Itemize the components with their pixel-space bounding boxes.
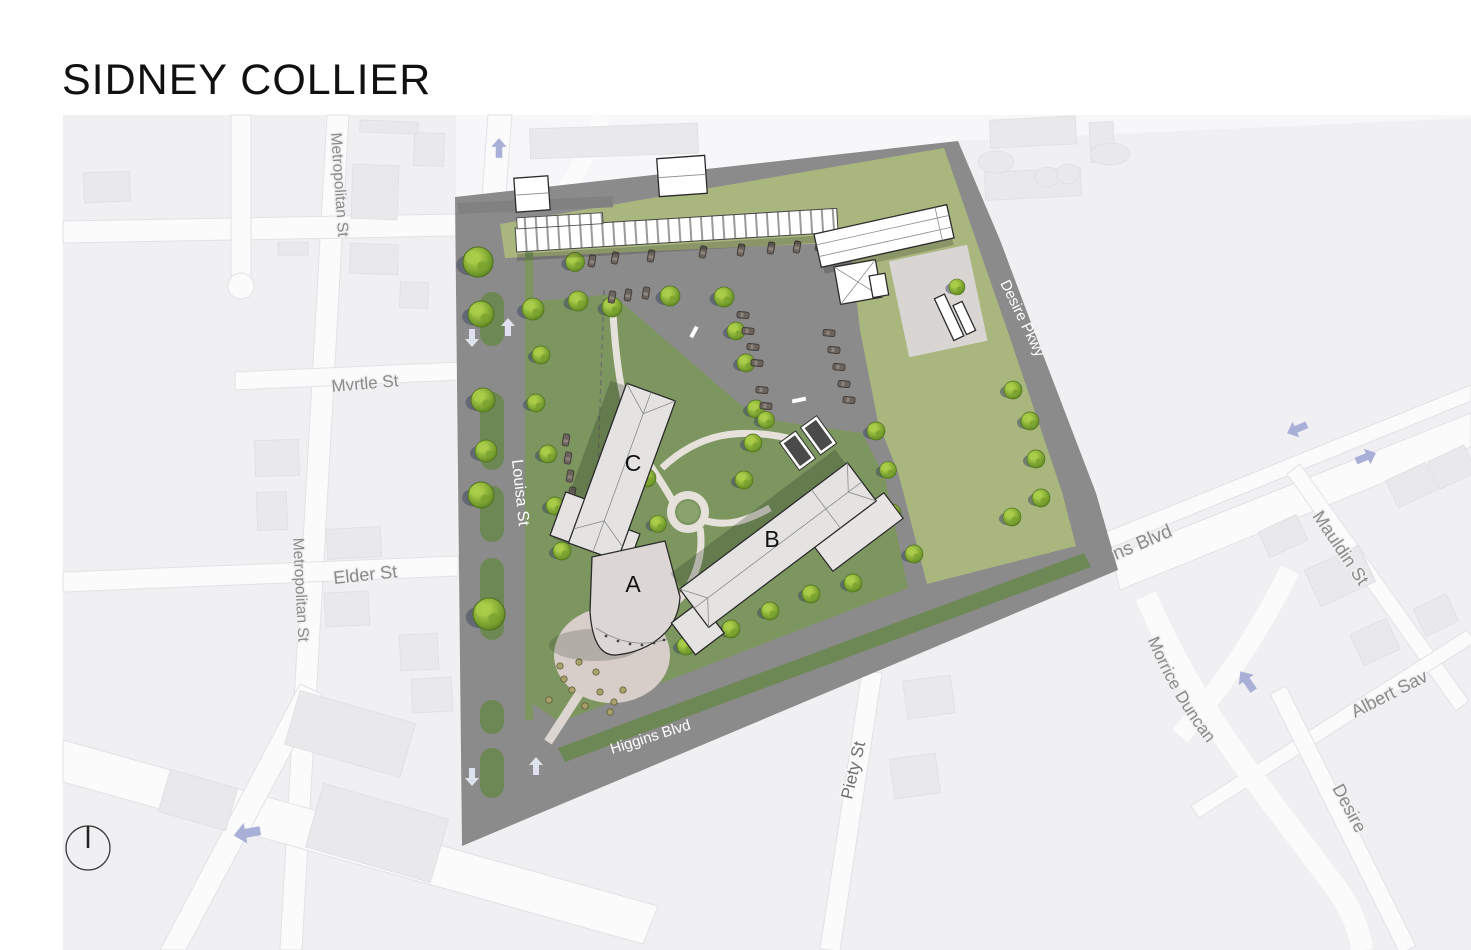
round-lawn	[677, 501, 699, 523]
car-icon	[737, 311, 750, 318]
building-b-label: B	[764, 526, 779, 552]
shrub-icon	[561, 676, 567, 682]
shrub-icon	[557, 663, 563, 669]
shrub-icon	[597, 689, 603, 695]
car-icon	[747, 343, 760, 350]
gable-building-west	[514, 176, 550, 212]
car-icon	[742, 327, 755, 334]
median-strip	[480, 700, 504, 734]
shrub-icon	[611, 699, 617, 705]
car-icon	[843, 396, 856, 403]
gable-building-east	[657, 155, 708, 196]
shrub-icon	[593, 669, 599, 675]
car-icon	[833, 363, 846, 370]
car-icon	[760, 402, 773, 409]
shrub-icon	[569, 687, 575, 693]
car-icon	[751, 359, 764, 366]
car-icon	[756, 386, 769, 393]
car-icon	[838, 380, 851, 387]
shrub-icon	[546, 697, 552, 703]
street-small-vertical	[231, 115, 251, 283]
site-plan-map: Metropolitan St Metropolitan St Mvrtle S…	[0, 0, 1471, 950]
site-plan-page: SIDNEY COLLIER	[0, 0, 1471, 950]
car-icon	[823, 329, 836, 336]
median-strip	[480, 748, 504, 798]
street-cul-de-sac	[228, 273, 254, 299]
shrub-icon	[582, 703, 588, 709]
shrub-icon	[607, 709, 613, 715]
building-a-label: A	[625, 571, 641, 597]
car-icon	[828, 346, 841, 353]
shrub-icon	[620, 687, 626, 693]
building-c-label: C	[625, 450, 642, 476]
